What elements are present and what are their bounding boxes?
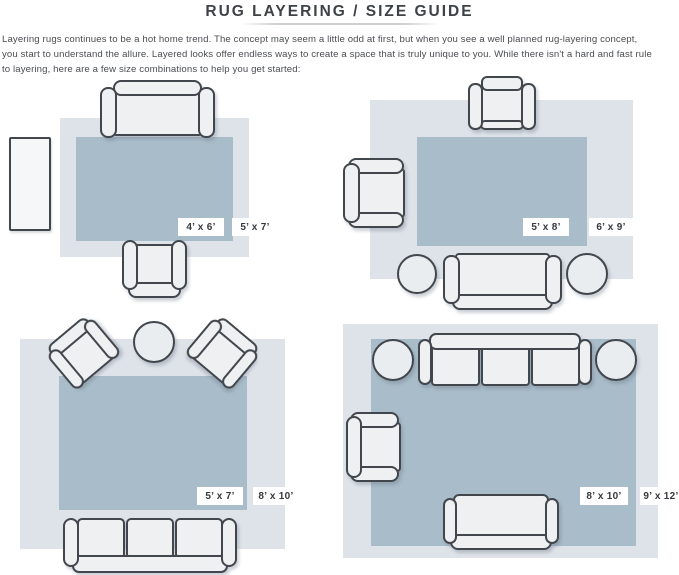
armchair-seat bbox=[356, 422, 401, 472]
sofa-arm-left bbox=[100, 87, 117, 138]
armchair bbox=[346, 412, 403, 482]
armchair bbox=[122, 240, 187, 298]
outer-rug-size-label: 9’ x 12’ bbox=[640, 487, 679, 505]
sofa-back bbox=[72, 555, 228, 573]
intro-line: you start to understand the allure. Laye… bbox=[2, 47, 678, 62]
round-pouf bbox=[397, 254, 437, 294]
outer-rug-size-label: 5’ x 7’ bbox=[232, 218, 278, 236]
sofa-cushion bbox=[481, 346, 530, 386]
sofa-arm-left bbox=[443, 255, 460, 304]
armchair-arm-left bbox=[468, 83, 483, 130]
intro-line: to layering, here are a few size combina… bbox=[2, 62, 678, 77]
sofa-arm-right bbox=[221, 518, 237, 567]
sofa-back bbox=[113, 80, 202, 96]
armchair-arm-left bbox=[122, 240, 138, 290]
armchair-back bbox=[343, 163, 360, 223]
sofa-cushion bbox=[126, 518, 174, 559]
armchair-arm-right bbox=[521, 83, 536, 130]
round-pouf bbox=[595, 339, 637, 381]
round-pouf bbox=[566, 253, 608, 295]
sofa-back bbox=[429, 333, 581, 350]
three-seat-sofa bbox=[63, 518, 237, 573]
armchair-front bbox=[480, 120, 524, 130]
armchair bbox=[468, 76, 536, 130]
loveseat-back bbox=[450, 534, 552, 550]
loveseat-seat bbox=[453, 494, 549, 539]
armchair-back bbox=[481, 76, 523, 91]
sofa-arm-right bbox=[578, 339, 592, 385]
page-title: RUG LAYERING / SIZE GUIDE bbox=[0, 3, 679, 21]
outer-rug-size-label: 6’ x 9’ bbox=[589, 218, 633, 236]
sofa-arm-right bbox=[198, 87, 215, 138]
armchair-arm-right bbox=[171, 240, 187, 290]
intro-line: Layering rugs continues to be a hot home… bbox=[2, 32, 678, 47]
inner-rug-size-badge: 4’ x 6’ bbox=[178, 218, 224, 236]
inner-rug-size-badge: 8’ x 10’ bbox=[580, 487, 628, 505]
outer-rug-size-label: 8’ x 10’ bbox=[253, 487, 299, 505]
loveseat-arm-left bbox=[443, 498, 457, 544]
sofa-cushion bbox=[175, 518, 223, 559]
inner-rug-size-badge: 5’ x 7’ bbox=[197, 487, 243, 505]
sofa-arm-left bbox=[418, 339, 432, 385]
rug-size-guide-infographic: RUG LAYERING / SIZE GUIDE Layering rugs … bbox=[0, 0, 679, 575]
intro-text: Layering rugs continues to be a hot home… bbox=[2, 32, 678, 77]
sofa-cushion bbox=[77, 518, 125, 559]
sofa-seat bbox=[455, 253, 550, 299]
sofa-cushion bbox=[431, 346, 480, 386]
inner-rug-size-badge: 5’ x 8’ bbox=[523, 218, 569, 236]
armchair-seat bbox=[355, 168, 405, 218]
sofa-arm-right bbox=[545, 255, 562, 304]
sofa bbox=[100, 80, 215, 138]
armchair-back bbox=[346, 416, 362, 478]
title-divider bbox=[240, 23, 440, 25]
round-pouf bbox=[372, 339, 414, 381]
loveseat bbox=[443, 494, 559, 550]
side-table bbox=[9, 137, 51, 231]
sofa-seat bbox=[112, 90, 203, 136]
armchair bbox=[343, 158, 409, 228]
sofa-back bbox=[452, 294, 553, 310]
round-table bbox=[133, 321, 175, 363]
armchair-seat bbox=[480, 86, 524, 124]
sofa-cushion bbox=[531, 346, 580, 386]
sofa bbox=[443, 253, 562, 310]
sofa-arm-left bbox=[63, 518, 79, 567]
three-seat-sofa bbox=[418, 333, 592, 387]
loveseat-arm-right bbox=[545, 498, 559, 544]
